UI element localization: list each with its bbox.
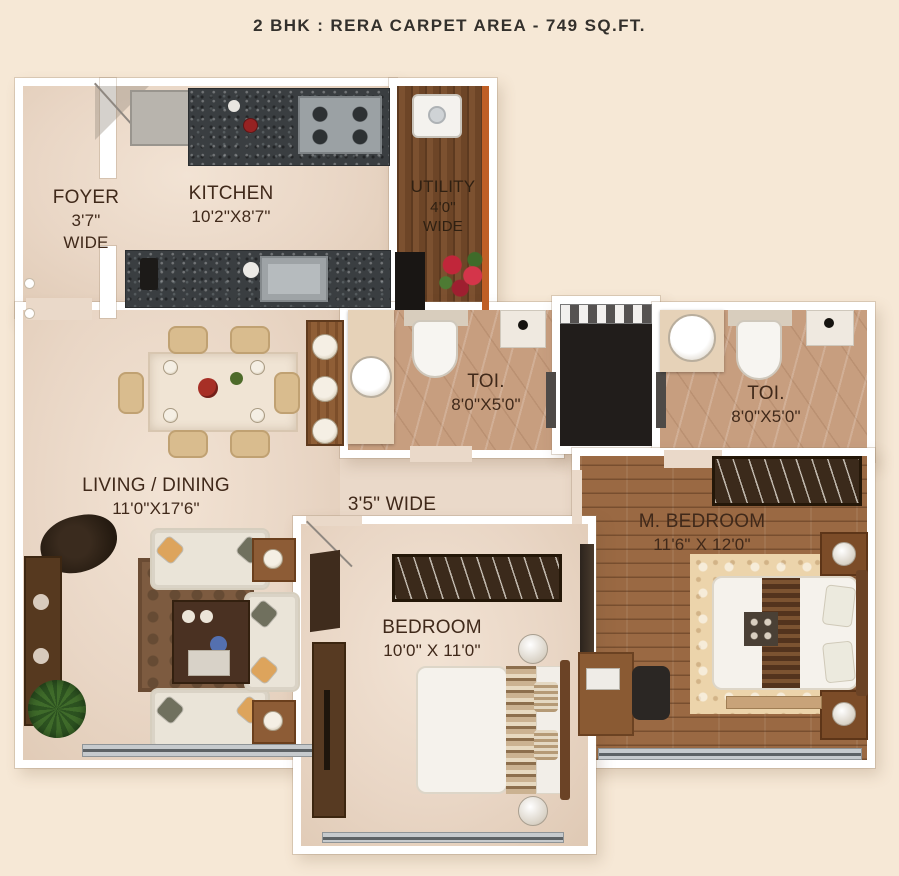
label-foyer: FOYER 3'7" WIDE bbox=[26, 186, 146, 254]
headboard-master bbox=[856, 570, 868, 696]
label-toilet-common: TOI. 8'0"X5'0" bbox=[420, 370, 552, 416]
room-size: 11'0"X17'6" bbox=[51, 498, 261, 520]
pillow bbox=[534, 682, 558, 712]
console-plate bbox=[312, 418, 338, 444]
bedroom-window bbox=[322, 832, 564, 843]
fruit-bowl bbox=[198, 378, 218, 398]
kitchen-appliance bbox=[140, 258, 158, 290]
room-size: 3'7" bbox=[26, 210, 146, 232]
toilet-common-door bbox=[410, 446, 472, 462]
flower-planter bbox=[436, 246, 490, 300]
console-plate bbox=[312, 376, 338, 402]
console-decor bbox=[33, 594, 49, 610]
study-desk bbox=[578, 652, 634, 736]
floor-plan: FOYER 3'7" WIDE KITCHEN 10'2"X8'7" UTILI… bbox=[0, 0, 899, 876]
wash-basin-master bbox=[668, 314, 716, 362]
dining-chair bbox=[168, 326, 208, 354]
foyer-kitchen-wall-lower bbox=[100, 246, 116, 318]
foyer-living-opening bbox=[26, 298, 92, 320]
label-living-dining: LIVING / DINING 11'0"X17'6" bbox=[51, 474, 261, 520]
shower-area-master bbox=[806, 310, 854, 346]
label-bedroom: BEDROOM 10'0" X 11'0" bbox=[342, 616, 522, 662]
table-lamp bbox=[832, 542, 856, 566]
bed-bedroom bbox=[416, 666, 508, 794]
label-utility: UTILITY 4'0" WIDE bbox=[396, 176, 490, 236]
corner-shelf bbox=[310, 550, 340, 632]
pillow bbox=[822, 641, 856, 684]
table-decor bbox=[182, 610, 195, 623]
washing-machine-drum bbox=[428, 106, 446, 124]
room-name: KITCHEN bbox=[146, 182, 316, 206]
console-decor bbox=[33, 648, 49, 664]
room-name: TOI. bbox=[420, 370, 552, 394]
bedside-lamp bbox=[518, 796, 548, 826]
staircase bbox=[560, 304, 652, 324]
room-name: FOYER bbox=[26, 186, 146, 210]
bed-tray bbox=[744, 612, 778, 646]
lift-shaft bbox=[560, 324, 652, 446]
floor-plant bbox=[28, 680, 86, 738]
salad-dish bbox=[230, 372, 243, 385]
shower-head-icon-master bbox=[824, 318, 834, 328]
living-window bbox=[82, 744, 340, 757]
master-window bbox=[598, 748, 862, 760]
desk-chair bbox=[632, 666, 670, 720]
pillow bbox=[534, 730, 558, 760]
table-decor bbox=[200, 610, 213, 623]
dining-chair bbox=[168, 430, 208, 458]
plate bbox=[163, 408, 178, 423]
side-table-decor bbox=[263, 711, 283, 731]
room-name: LIVING / DINING bbox=[51, 474, 261, 498]
dining-chair bbox=[230, 326, 270, 354]
plate bbox=[250, 408, 265, 423]
label-passage: 3'5" WIDE bbox=[331, 493, 453, 517]
room-name: UTILITY bbox=[396, 176, 490, 198]
bed-bench bbox=[726, 696, 822, 709]
label-toilet-master: TOI. 8'0"X5'0" bbox=[700, 382, 832, 428]
fridge bbox=[130, 90, 190, 146]
cooking-pot bbox=[243, 118, 258, 133]
room-size: 4'0" bbox=[396, 198, 490, 217]
tv-panel-master bbox=[580, 544, 594, 656]
passage-width: 3'5" WIDE bbox=[331, 493, 453, 517]
wall-light bbox=[24, 308, 35, 319]
utility-door bbox=[395, 252, 425, 310]
bedroom-door bbox=[306, 516, 362, 526]
wash-basin bbox=[350, 356, 392, 398]
wall-light bbox=[24, 278, 35, 289]
headboard-bedroom bbox=[560, 660, 570, 800]
room-size: 11'6" X 12'0" bbox=[608, 534, 796, 556]
room-name: BEDROOM bbox=[342, 616, 522, 640]
table-lamp bbox=[832, 702, 856, 726]
wardrobe-master bbox=[712, 456, 862, 506]
master-bedroom-door bbox=[572, 470, 582, 524]
room-name: TOI. bbox=[700, 382, 832, 406]
label-kitchen: KITCHEN 10'2"X8'7" bbox=[146, 182, 316, 228]
page: 2 BHK : RERA CARPET AREA - 749 SQ.FT. bbox=[0, 0, 899, 876]
cooktop bbox=[298, 96, 382, 154]
room-name: M. BEDROOM bbox=[608, 510, 796, 534]
room-note: WIDE bbox=[26, 232, 146, 254]
tv-screen bbox=[324, 690, 330, 770]
plate bbox=[163, 360, 178, 375]
toilet-wc-master bbox=[736, 320, 782, 380]
kitchen-counter-bottom bbox=[125, 250, 391, 308]
shower-head-icon bbox=[518, 320, 528, 330]
pillow bbox=[822, 584, 857, 627]
room-size: 10'0" X 11'0" bbox=[342, 640, 522, 662]
dining-chair bbox=[230, 430, 270, 458]
kitchen-sink bbox=[260, 256, 328, 302]
plate bbox=[250, 360, 265, 375]
laptop bbox=[586, 668, 620, 690]
lift-door-right bbox=[656, 372, 666, 428]
label-master-bedroom: M. BEDROOM 11'6" X 12'0" bbox=[608, 510, 796, 556]
magazine bbox=[188, 650, 230, 676]
wardrobe-bedroom bbox=[392, 554, 562, 602]
room-note: WIDE bbox=[396, 217, 490, 236]
kitchen-bowl-2 bbox=[243, 262, 259, 278]
bedside-lamp bbox=[518, 634, 548, 664]
dining-chair bbox=[274, 372, 300, 414]
side-table-decor bbox=[263, 549, 283, 569]
room-size: 8'0"X5'0" bbox=[700, 406, 832, 428]
console-plate bbox=[312, 334, 338, 360]
kitchen-bowl bbox=[228, 100, 240, 112]
dining-chair bbox=[118, 372, 144, 414]
room-size: 8'0"X5'0" bbox=[420, 394, 552, 416]
room-size: 10'2"X8'7" bbox=[146, 206, 316, 228]
